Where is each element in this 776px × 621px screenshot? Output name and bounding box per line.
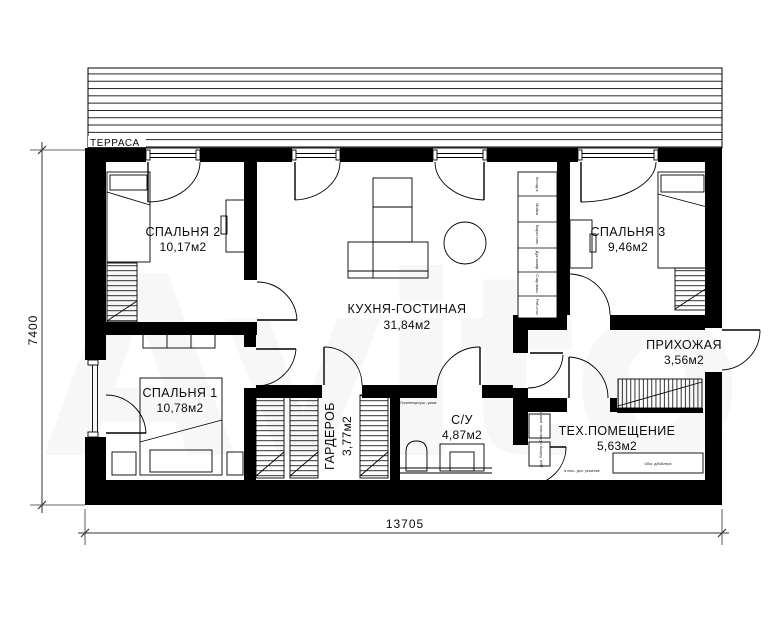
- room-label-kitchen-living: КУХНЯ-ГОСТИНАЯ: [348, 302, 467, 316]
- room-area-bathroom: 4,87м2: [442, 428, 482, 442]
- bedroom3-wardrobe: [675, 268, 707, 310]
- kitchen-cell-hob-label: Вароч.пан.: [535, 225, 540, 245]
- floor-plan-screenshot: 7400 13705 ТЕРРАСА Avito: [0, 0, 776, 621]
- bathroom-note: Полотенцесуш.; умыв.: [400, 401, 437, 405]
- room-label-bedroom3: СПАЛЬНЯ 3: [590, 225, 665, 239]
- room-area-hallway: 3,56м2: [664, 353, 704, 367]
- room-label-bedroom1: СПАЛЬНЯ 1: [142, 386, 217, 400]
- kitchen-counter: Холод-к Мойка Вароч.пан. Дух.шкаф Стир.м…: [518, 172, 557, 318]
- room-area-wardrobe: 3,77м2: [340, 416, 354, 456]
- room-label-bathroom: С/У: [451, 413, 473, 427]
- dimension-bottom-value: 13705: [386, 517, 424, 531]
- terrace: ТЕРРАСА: [88, 68, 722, 149]
- tech-note-left2: Душ. бойлер г/х: [539, 441, 543, 468]
- dimension-left-value: 7400: [26, 315, 40, 346]
- hallway-closet: [618, 379, 702, 408]
- room-label-tech: ТЕХ.ПОМЕЩЕНИЕ: [559, 424, 676, 438]
- tech-note-left1: Стир.маш. разм.40: [539, 410, 543, 442]
- kitchen-cell-sink-label: Мойка: [535, 203, 540, 216]
- room-area-bedroom1: 10,78м2: [156, 401, 203, 415]
- kitchen-cell-fridge-label: Холод-к: [535, 177, 540, 192]
- tech-note-bottom: Обог. д/бойлера: [645, 462, 672, 466]
- kitchen-cell-oven-label: Дух.шкаф: [535, 251, 540, 270]
- room-area-tech: 5,63м2: [597, 439, 637, 453]
- room-area-bedroom2: 10,17м2: [159, 240, 206, 254]
- room-label-wardrobe: ГАРДЕРОБ: [323, 402, 337, 470]
- tech-door-note: в пом.- доп. решение: [564, 469, 599, 473]
- room-area-kitchen-living: 31,84м2: [383, 318, 430, 332]
- kitchen-cell-worktop-label: Раб.стол: [535, 299, 540, 316]
- terrace-label: ТЕРРАСА: [90, 138, 140, 149]
- kitchen-cell-washer-label: Стир.маш.: [535, 274, 540, 294]
- room-label-hallway: ПРИХОЖАЯ: [646, 338, 722, 352]
- room-label-bedroom2: СПАЛЬНЯ 2: [145, 225, 220, 239]
- bedroom2-wardrobe: [107, 263, 137, 322]
- floor-plan-canvas: 7400 13705 ТЕРРАСА Avito: [0, 0, 776, 621]
- room-area-bedroom3: 9,46м2: [608, 240, 648, 254]
